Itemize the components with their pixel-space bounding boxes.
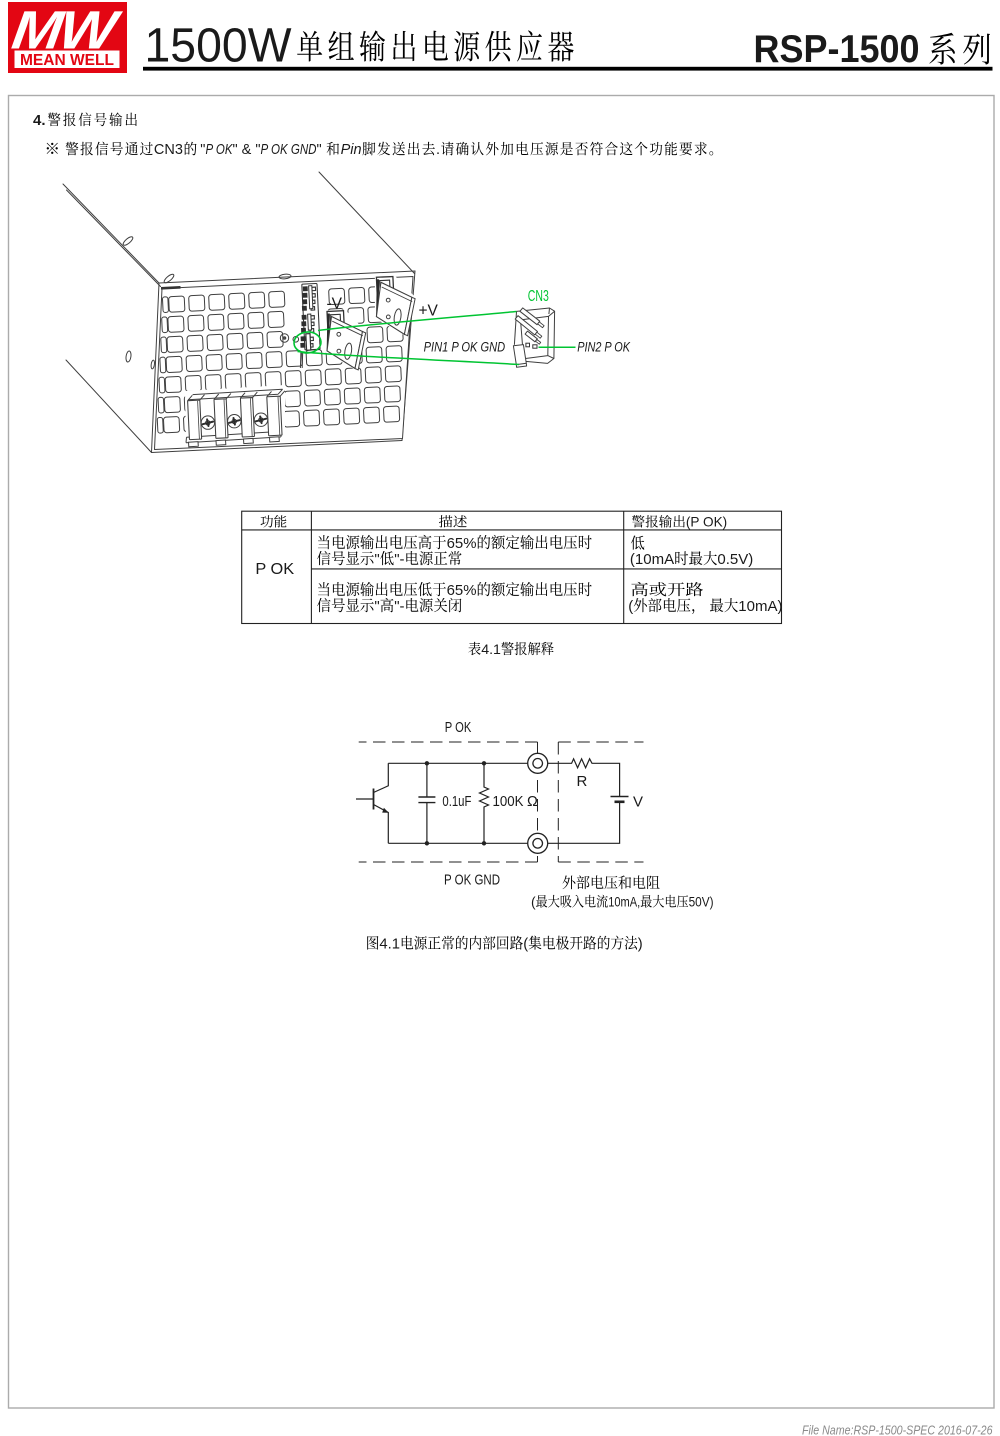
svg-text:PIN2 P OK: PIN2 P OK xyxy=(577,339,631,354)
svg-text:Pin: Pin xyxy=(341,142,362,158)
svg-text:P OK GND: P OK GND xyxy=(444,872,500,888)
svg-text:R: R xyxy=(577,773,588,790)
svg-text:65%: 65% xyxy=(447,535,477,552)
svg-text:": " xyxy=(374,551,379,568)
svg-text:P OK: P OK xyxy=(255,561,294,578)
svg-text:MEAN WELL: MEAN WELL xyxy=(20,52,114,69)
svg-text:+V: +V xyxy=(419,303,439,320)
svg-text:4.1: 4.1 xyxy=(379,937,400,953)
svg-text:P OK: P OK xyxy=(206,142,234,158)
svg-text:(10mA: (10mA xyxy=(630,551,674,568)
svg-text:100K: 100K xyxy=(493,794,524,810)
svg-text:P OK GND: P OK GND xyxy=(261,142,317,158)
svg-text:0.1uF: 0.1uF xyxy=(442,794,471,810)
svg-text:.: . xyxy=(436,142,440,158)
svg-text:P OK: P OK xyxy=(445,720,472,736)
svg-text:(: ( xyxy=(531,895,536,910)
svg-text:(P OK): (P OK) xyxy=(686,515,727,530)
svg-text:(: ( xyxy=(523,937,528,953)
svg-text:10mA,: 10mA, xyxy=(608,895,640,910)
svg-text:"-: "- xyxy=(394,551,404,568)
svg-text:": " xyxy=(317,142,322,158)
svg-text:PIN1 P OK GND: PIN1 P OK GND xyxy=(424,339,506,354)
svg-text:V: V xyxy=(633,794,643,811)
svg-text:0.5V): 0.5V) xyxy=(717,551,753,568)
svg-text:50V): 50V) xyxy=(689,895,714,910)
svg-text:): ) xyxy=(638,937,643,953)
svg-text:": " xyxy=(374,598,379,615)
svg-text:4.: 4. xyxy=(33,112,46,129)
svg-text:Ω: Ω xyxy=(527,794,538,810)
svg-text:(: ( xyxy=(628,598,633,615)
svg-text:"-: "- xyxy=(394,598,404,615)
svg-text:CN3: CN3 xyxy=(154,142,183,158)
svg-text:" & ": " & " xyxy=(233,142,261,158)
svg-text:CN3: CN3 xyxy=(528,288,549,305)
svg-text:-V: -V xyxy=(327,296,343,313)
svg-text:10mA): 10mA) xyxy=(738,598,782,615)
svg-text:1500W: 1500W xyxy=(145,20,293,73)
svg-text:65%: 65% xyxy=(447,582,477,599)
svg-text:File Name:RSP-1500-SPEC 2016-: File Name:RSP-1500-SPEC 2016-07-26 xyxy=(802,1423,993,1436)
svg-text:RSP-1500: RSP-1500 xyxy=(754,28,920,71)
svg-text:4.1: 4.1 xyxy=(481,642,501,658)
